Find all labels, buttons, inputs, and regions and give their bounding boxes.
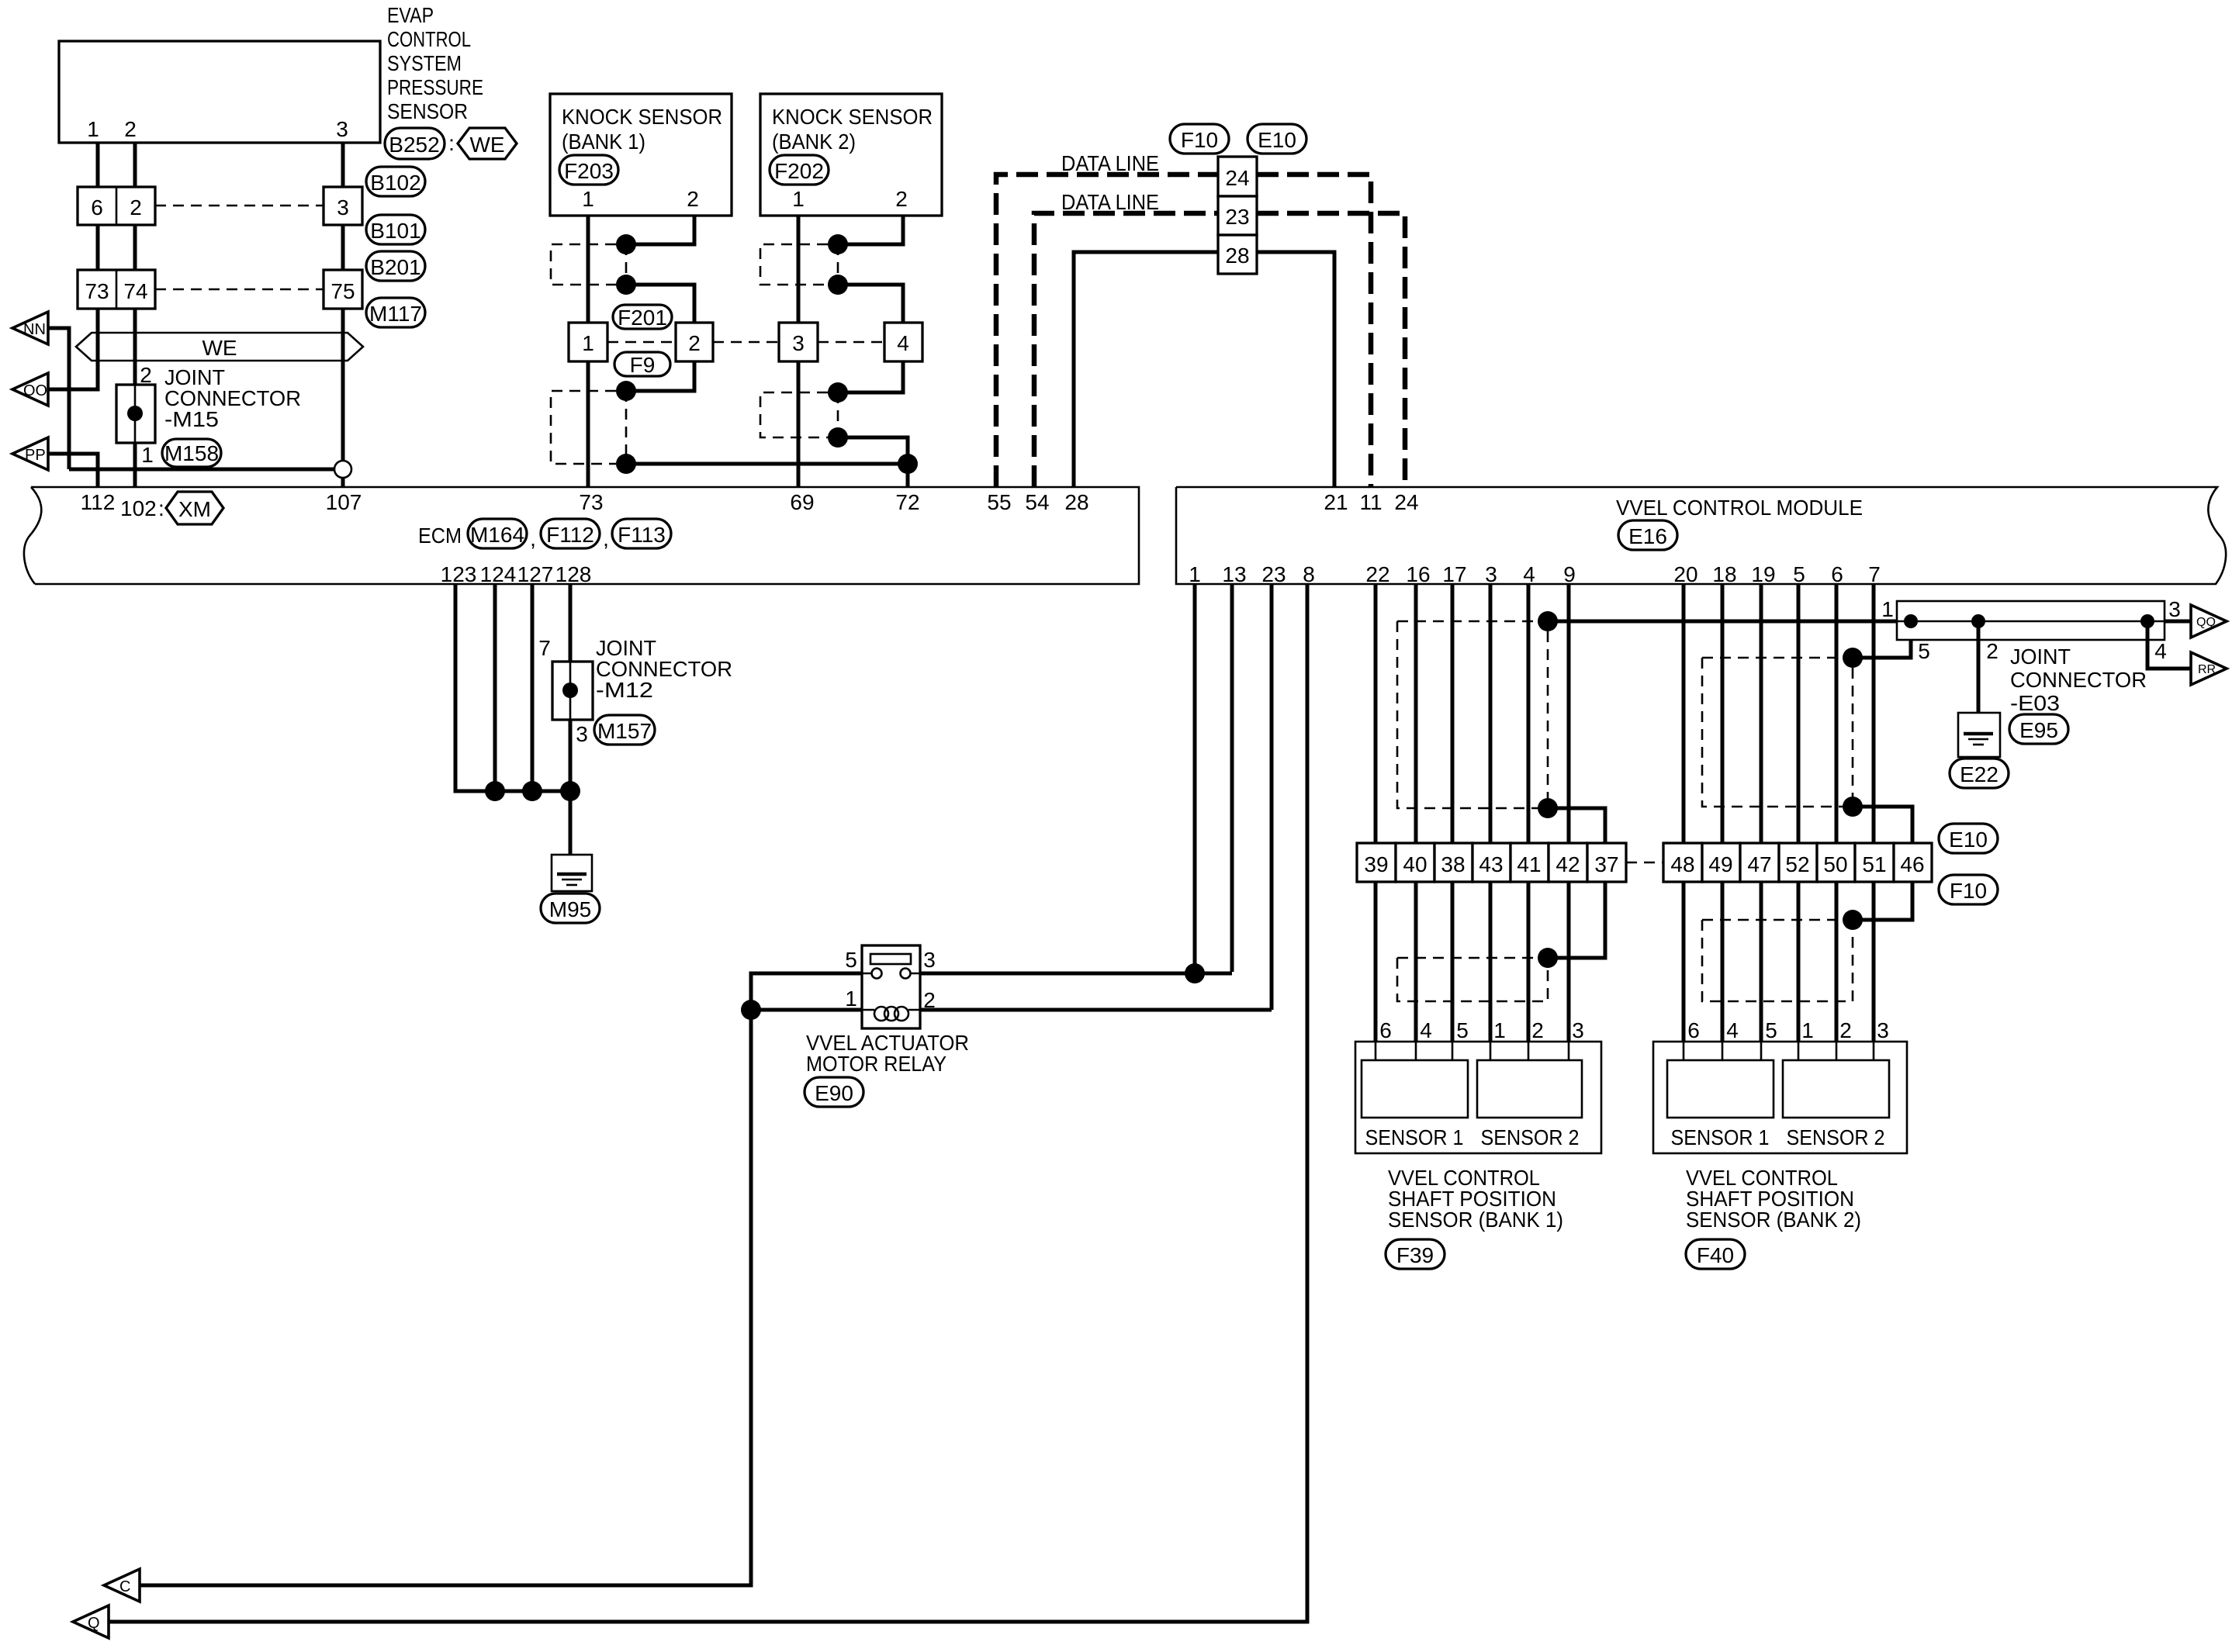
- svg-text:6: 6: [1831, 562, 1843, 586]
- svg-text:124: 124: [480, 562, 517, 586]
- svg-text:DATA LINE: DATA LINE: [1061, 151, 1159, 175]
- svg-text:49: 49: [1708, 852, 1732, 876]
- svg-text:5: 5: [1918, 639, 1930, 663]
- svg-text:DATA LINE: DATA LINE: [1061, 190, 1159, 214]
- svg-text:11: 11: [1359, 490, 1382, 514]
- svg-text:16: 16: [1406, 562, 1430, 586]
- svg-text:2: 2: [1986, 639, 1998, 663]
- svg-text:,: ,: [603, 527, 609, 551]
- svg-text:F10: F10: [1950, 879, 1987, 903]
- svg-text:41: 41: [1517, 852, 1541, 876]
- svg-text:23: 23: [1261, 562, 1286, 586]
- svg-text:1: 1: [582, 187, 594, 211]
- svg-text:E10: E10: [1258, 128, 1296, 152]
- svg-text:ECM: ECM: [418, 524, 462, 548]
- svg-text:6: 6: [1379, 1018, 1392, 1042]
- svg-text:Q: Q: [88, 1615, 100, 1632]
- svg-text:(BANK 2): (BANK 2): [772, 130, 856, 154]
- svg-text:20: 20: [1673, 562, 1697, 586]
- svg-text:MOTOR RELAY: MOTOR RELAY: [806, 1052, 946, 1076]
- svg-text:22: 22: [1365, 562, 1389, 586]
- svg-text:6: 6: [91, 195, 103, 219]
- svg-text:F112: F112: [546, 523, 594, 547]
- svg-text:VVEL CONTROL MODULE: VVEL CONTROL MODULE: [1616, 496, 1863, 520]
- svg-text:(BANK 1): (BANK 1): [562, 130, 645, 154]
- svg-text:XM: XM: [178, 497, 211, 521]
- svg-text:1: 1: [1189, 562, 1201, 586]
- svg-text:3: 3: [1877, 1018, 1889, 1042]
- svg-text:2: 2: [1839, 1018, 1852, 1042]
- svg-text:KNOCK SENSOR: KNOCK SENSOR: [772, 105, 933, 129]
- svg-text:SENSOR: SENSOR: [387, 99, 468, 123]
- svg-text::: :: [448, 131, 455, 155]
- svg-text:SENSOR (BANK 2): SENSOR (BANK 2): [1686, 1208, 1861, 1232]
- svg-text:4: 4: [1420, 1018, 1432, 1042]
- svg-text:E95: E95: [2019, 718, 2058, 742]
- svg-text:4: 4: [1726, 1018, 1739, 1042]
- svg-text:F202: F202: [774, 159, 824, 183]
- svg-text:F10: F10: [1181, 128, 1218, 152]
- svg-text:SENSOR (BANK 1): SENSOR (BANK 1): [1388, 1208, 1563, 1232]
- svg-text:54: 54: [1025, 490, 1049, 514]
- svg-text:47: 47: [1747, 852, 1771, 876]
- svg-text:73: 73: [85, 279, 109, 303]
- svg-text:3: 3: [792, 331, 805, 355]
- svg-text:CONNECTOR: CONNECTOR: [2010, 668, 2147, 692]
- svg-text:5: 5: [1456, 1018, 1469, 1042]
- svg-text:37: 37: [1594, 852, 1618, 876]
- svg-text:PP: PP: [25, 447, 46, 464]
- svg-text:75: 75: [330, 279, 355, 303]
- svg-text:9: 9: [1563, 562, 1576, 586]
- svg-text:3: 3: [337, 195, 349, 219]
- svg-text:CONTROL: CONTROL: [387, 27, 471, 51]
- svg-text:KNOCK SENSOR: KNOCK SENSOR: [562, 105, 722, 129]
- svg-text:RR: RR: [2198, 663, 2216, 676]
- svg-text:1: 1: [1493, 1018, 1506, 1042]
- svg-text:2: 2: [124, 117, 137, 141]
- svg-text:B101: B101: [370, 219, 420, 243]
- svg-text:1: 1: [1881, 597, 1894, 621]
- svg-text:2: 2: [140, 363, 152, 387]
- svg-text:2: 2: [687, 187, 699, 211]
- svg-text:24: 24: [1225, 166, 1249, 190]
- svg-text:1: 1: [792, 187, 805, 211]
- svg-text:M164: M164: [470, 523, 524, 547]
- svg-text:C: C: [119, 1578, 130, 1595]
- svg-text:-M15: -M15: [164, 407, 219, 431]
- svg-text:WE: WE: [202, 336, 237, 360]
- svg-text:7: 7: [538, 636, 551, 660]
- svg-text:39: 39: [1364, 852, 1388, 876]
- svg-text:2: 2: [688, 331, 701, 355]
- svg-text:28: 28: [1225, 244, 1249, 268]
- svg-text:73: 73: [579, 490, 603, 514]
- svg-text:107: 107: [326, 490, 362, 514]
- svg-text:17: 17: [1442, 562, 1466, 586]
- svg-text:F40: F40: [1697, 1243, 1734, 1267]
- svg-text:SENSOR 1: SENSOR 1: [1671, 1125, 1770, 1149]
- svg-text:1: 1: [582, 331, 594, 355]
- svg-text:F113: F113: [618, 523, 666, 547]
- svg-text:13: 13: [1222, 562, 1246, 586]
- svg-text:B252: B252: [389, 133, 439, 157]
- svg-text:,: ,: [530, 527, 536, 551]
- svg-text:3: 3: [1485, 562, 1497, 586]
- svg-text:112: 112: [81, 490, 116, 514]
- svg-text:2: 2: [1531, 1018, 1544, 1042]
- svg-text:74: 74: [123, 279, 147, 303]
- svg-text:102: 102: [120, 496, 157, 520]
- svg-text:F203: F203: [564, 159, 614, 183]
- svg-text:NN: NN: [23, 321, 46, 338]
- svg-text:23: 23: [1225, 205, 1249, 229]
- svg-text:52: 52: [1785, 852, 1809, 876]
- svg-text:M157: M157: [597, 719, 652, 743]
- svg-text:6: 6: [1687, 1018, 1700, 1042]
- svg-text:42: 42: [1556, 852, 1580, 876]
- svg-text:EVAP: EVAP: [387, 3, 434, 27]
- svg-text:48: 48: [1670, 852, 1694, 876]
- svg-text:127: 127: [517, 562, 554, 586]
- svg-text:SENSOR 2: SENSOR 2: [1787, 1125, 1885, 1149]
- svg-text:55: 55: [987, 490, 1011, 514]
- svg-text:7: 7: [1868, 562, 1881, 586]
- svg-text:1: 1: [87, 117, 99, 141]
- svg-text:B102: B102: [370, 171, 420, 195]
- svg-text:QQ: QQ: [2196, 616, 2216, 629]
- svg-text:123: 123: [441, 562, 477, 586]
- svg-text:3: 3: [2168, 597, 2181, 621]
- svg-text:JOINT: JOINT: [2010, 645, 2071, 669]
- svg-text:46: 46: [1900, 852, 1924, 876]
- svg-text:43: 43: [1479, 852, 1503, 876]
- svg-text:F39: F39: [1396, 1243, 1434, 1267]
- svg-text:72: 72: [895, 490, 919, 514]
- svg-text:1: 1: [141, 443, 154, 467]
- svg-text:18: 18: [1712, 562, 1736, 586]
- svg-text:24: 24: [1394, 490, 1418, 514]
- svg-text:E10: E10: [1949, 828, 1988, 852]
- svg-text:5: 5: [845, 948, 857, 972]
- svg-text:4: 4: [897, 331, 909, 355]
- svg-text:B201: B201: [370, 255, 420, 279]
- svg-text:5: 5: [1765, 1018, 1777, 1042]
- svg-text:50: 50: [1823, 852, 1847, 876]
- svg-text::: :: [158, 496, 164, 520]
- svg-text:40: 40: [1403, 852, 1427, 876]
- svg-text:69: 69: [790, 490, 814, 514]
- svg-text:-E03: -E03: [2010, 691, 2060, 715]
- svg-text:E16: E16: [1628, 524, 1667, 548]
- svg-text:1: 1: [1801, 1018, 1814, 1042]
- svg-text:SYSTEM: SYSTEM: [387, 51, 462, 75]
- svg-text:28: 28: [1064, 490, 1088, 514]
- svg-text:OO: OO: [23, 382, 47, 399]
- svg-text:38: 38: [1441, 852, 1465, 876]
- svg-text:PRESSURE: PRESSURE: [387, 75, 483, 99]
- svg-text:3: 3: [576, 722, 588, 746]
- svg-text:21: 21: [1324, 490, 1348, 514]
- svg-text:M117: M117: [369, 302, 422, 326]
- svg-text:2: 2: [895, 187, 908, 211]
- svg-text:51: 51: [1862, 852, 1886, 876]
- svg-text:E90: E90: [815, 1081, 853, 1105]
- svg-text:M95: M95: [549, 897, 591, 921]
- svg-text:F201: F201: [618, 306, 667, 330]
- svg-text:19: 19: [1751, 562, 1775, 586]
- svg-text:WE: WE: [469, 133, 504, 157]
- svg-text:3: 3: [923, 948, 936, 972]
- svg-text:4: 4: [1523, 562, 1535, 586]
- svg-text:2: 2: [130, 195, 142, 219]
- svg-text:3: 3: [336, 117, 348, 141]
- svg-text:5: 5: [1793, 562, 1805, 586]
- svg-text:4: 4: [2154, 639, 2167, 663]
- svg-text:-M12: -M12: [596, 678, 653, 702]
- svg-text:E22: E22: [1960, 762, 1998, 786]
- svg-text:M158: M158: [164, 441, 219, 465]
- svg-text:SENSOR 2: SENSOR 2: [1481, 1125, 1580, 1149]
- svg-text:1: 1: [845, 987, 857, 1011]
- svg-text:SENSOR 1: SENSOR 1: [1365, 1125, 1464, 1149]
- svg-text:3: 3: [1572, 1018, 1584, 1042]
- svg-text:128: 128: [555, 562, 592, 586]
- svg-text:2: 2: [923, 988, 936, 1012]
- svg-text:F9: F9: [630, 353, 656, 377]
- svg-text:8: 8: [1303, 562, 1315, 586]
